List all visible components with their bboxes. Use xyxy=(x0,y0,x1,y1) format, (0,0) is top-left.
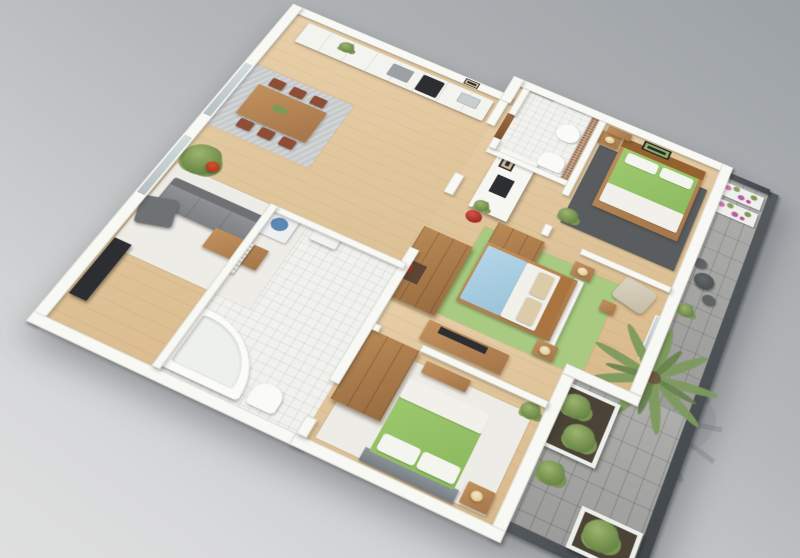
apartment-plan xyxy=(39,14,776,558)
floor-plan-render xyxy=(0,0,800,558)
